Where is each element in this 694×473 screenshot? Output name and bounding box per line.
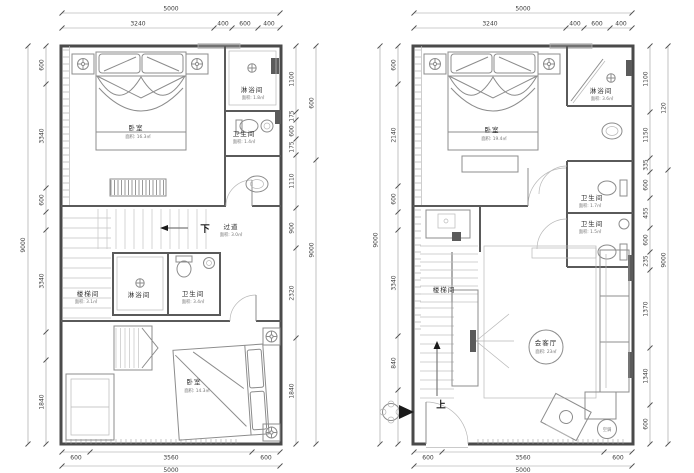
dim-left-0: 600 [391,59,398,71]
room-living-area: 面积: 23㎡ [535,348,557,355]
toilet-bowl [177,261,191,277]
rug [484,246,596,398]
dim-right-6: 235 [643,255,650,267]
dim-top-1: 400 [569,21,581,28]
room-bath-lower-area: 面积: 1.5㎡ [579,228,602,235]
dim-top-1: 400 [217,21,229,28]
dim-right-4: 455 [643,207,650,219]
dim-right-6: 2320 [289,285,296,300]
room-bedroom-top-area: 面积: 16.3㎡ [125,133,151,140]
floor-plan-drawing: 5000 3240 400 600 400 9000 600 3340 600 … [0,0,694,473]
dim-left-total: 9000 [20,237,27,252]
dim-bottom-1: 3560 [515,455,530,462]
room-corridor: 过道 [224,222,239,231]
living-label-circle [529,330,563,364]
shower-head-icon [607,74,615,82]
room-bedroom-area: 面积: 19.4㎡ [481,135,507,142]
dim-left-2: 600 [39,194,46,206]
floor-drain-icon [136,279,144,287]
up-arrow [434,341,441,349]
dim-top-2: 600 [239,21,251,28]
console-table [532,248,596,258]
dim-bottom-0: 600 [422,455,434,462]
room-bath-lower: 卫生间 [581,219,604,228]
dim-bottom-total: 5000 [515,467,530,473]
dim-top-total: 5000 [163,6,178,13]
dim-right-4: 1110 [289,173,296,188]
dim-left-total: 9000 [373,232,380,247]
dim-right-outer-total: 9000 [661,252,668,267]
dim-right-7: 1840 [289,383,296,398]
toilet-bowl [598,181,616,195]
dim-bottom-1: 3560 [163,455,178,462]
dim-top-3: 400 [615,21,627,28]
wash-basin [261,120,273,132]
room-bedroom: 卧室 [485,125,500,134]
floor-plan-sheet: 5000 3240 400 600 400 9000 600 3340 600 … [0,0,694,473]
dim-bottom-total: 5000 [163,467,178,473]
room-shower-area: 面积: 3.6㎡ [591,95,614,102]
dim-left-0: 600 [39,59,46,71]
dim-left-3: 3340 [39,273,46,288]
room-corridor-area: 面积: 3.0㎡ [220,231,243,238]
tv-icon [470,330,476,352]
room-bath-mid-area: 面积: 3.4㎡ [182,298,205,305]
toilet-tank [620,244,627,260]
room-living: 会客厅 [535,338,558,347]
dim-left-3: 3340 [391,275,398,290]
dim-right-3: 600 [643,179,650,191]
dim-top-0: 3240 [130,21,145,28]
room-bedroom-top: 卧室 [129,123,144,132]
dim-top-2: 600 [591,21,603,28]
stair-treads [98,209,206,249]
room-shower-mid: 淋浴间 [128,290,151,299]
dim-right-0: 1100 [643,71,650,86]
floor-plan-left: 5000 3240 400 600 400 9000 600 3340 600 … [20,6,319,473]
room-shower-top: 淋浴间 [241,85,264,94]
room-bath-top: 卫生间 [233,129,256,138]
room-shower: 淋浴间 [590,86,613,95]
armchair [541,393,591,440]
dim-right-0: 1100 [289,71,296,86]
dim-right-1: 175 [289,110,296,122]
dim-left-1: 2140 [391,127,398,142]
room-bedroom-bottom-area: 面积: 14.3㎡ [184,387,210,394]
left-plan-furniture [63,51,280,441]
dim-right-1: 1150 [643,127,650,142]
dim-right-2: 335 [643,159,650,171]
bench-radiator [110,179,166,196]
dim-bottom-2: 600 [612,455,624,462]
label-down: 下 [200,224,210,235]
sink-oval [602,123,622,139]
dim-right-3: 175 [289,141,296,153]
right-plan-furniture [380,52,629,441]
room-bath-mid: 卫生间 [182,289,205,298]
right-plan-labels: 卧室 面积: 19.4㎡ 淋浴间 面积: 3.6㎡ 卫生间 面积: 1.7㎡ 卫… [433,86,614,433]
dim-top-total: 5000 [515,6,530,13]
room-bath-upper-area: 面积: 1.7㎡ [579,202,602,209]
label-ac: 空调 [603,426,612,433]
dim-left-4: 840 [391,357,398,369]
dim-right-8: 1340 [643,368,650,383]
room-stairwell-area: 面积: 3.1㎡ [75,298,98,305]
dim-bottom-2: 600 [260,455,272,462]
dim-right-outer-top: 600 [309,97,316,109]
room-shower-top-area: 面积: 1.8㎡ [242,94,265,101]
label-up: 上 [436,399,446,411]
dim-bottom-0: 600 [70,455,82,462]
dim-right-5: 600 [643,234,650,246]
shower-drain-icon [248,64,256,72]
toilet-tank [620,180,627,196]
room-bedroom-bottom: 卧室 [187,377,202,386]
bed-bench [462,156,518,172]
room-stairwell: 楼梯间 [77,289,100,298]
wash-basin [619,219,629,229]
dim-right-9: 600 [643,418,650,430]
dim-left-2: 600 [391,193,398,205]
sink-oval [246,176,268,192]
floor-plan-right: 5000 3240 400 600 400 9000 600 2140 600 … [373,6,671,473]
double-bed [424,52,560,150]
sofa [600,250,629,392]
entry-marker [380,401,414,423]
room-bath-top-area: 面积: 1.4㎡ [233,138,256,145]
room-bath-upper: 卫生间 [581,193,604,202]
dim-left-1: 3340 [39,128,46,143]
room-stairwell: 楼梯间 [433,285,456,294]
dim-right-7: 1370 [643,301,650,316]
dim-top-0: 3240 [482,21,497,28]
dim-right-2: 600 [289,125,296,137]
dim-right-outer-total: 9000 [309,242,316,257]
dim-right-5: 900 [289,222,296,234]
wash-basin [204,258,215,269]
dim-right-outer-top: 120 [661,102,668,114]
dim-left-4: 1840 [39,394,46,409]
dim-top-3: 400 [263,21,275,28]
toilet-bowl [598,245,616,259]
